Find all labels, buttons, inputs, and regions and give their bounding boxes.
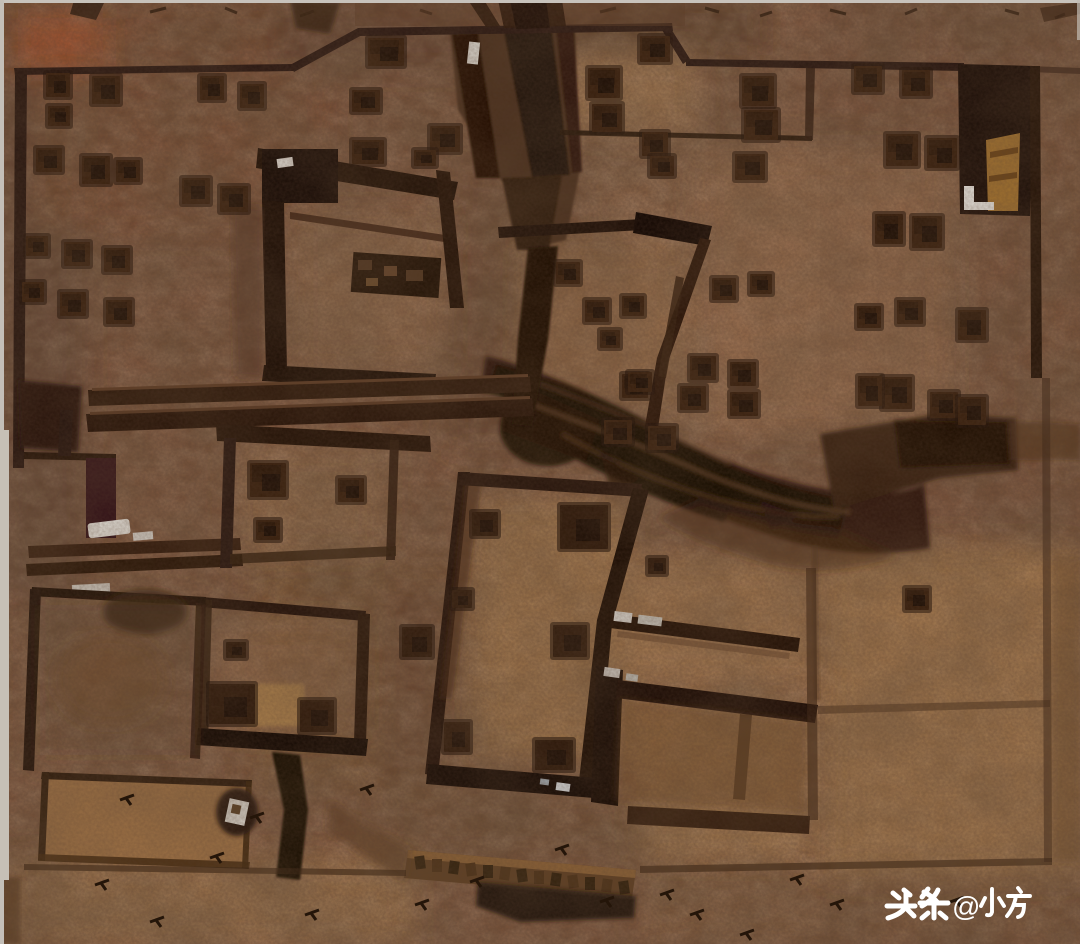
svg-text:@: @ xyxy=(952,891,980,922)
